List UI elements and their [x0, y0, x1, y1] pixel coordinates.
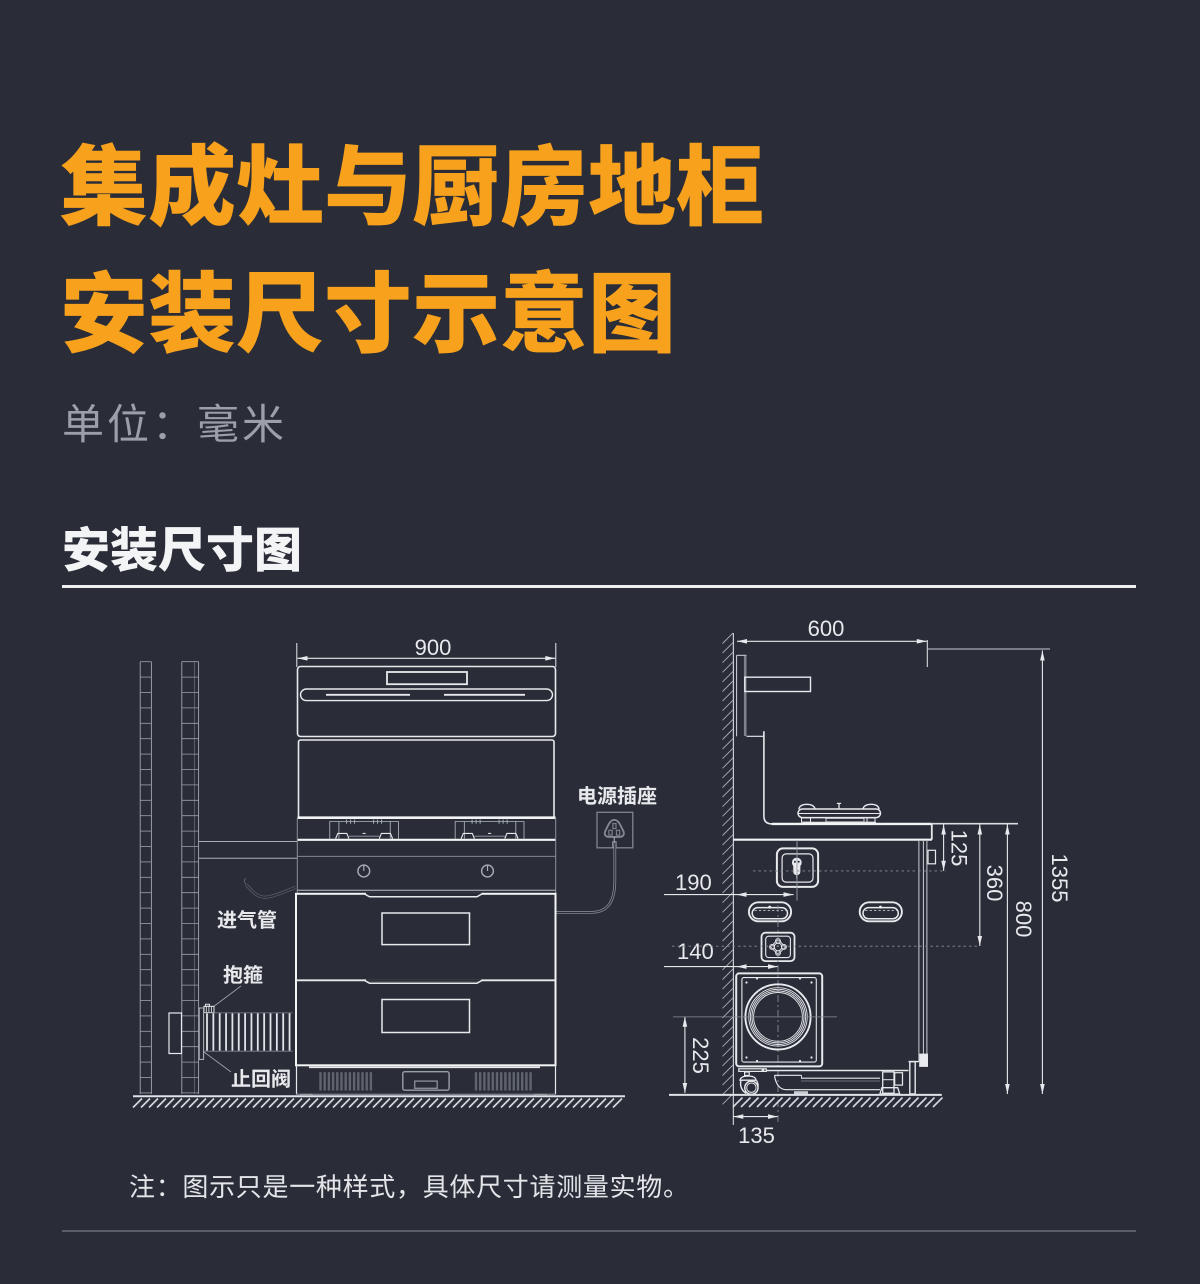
svg-text:600: 600 — [808, 616, 845, 641]
svg-text:225: 225 — [688, 1037, 713, 1074]
svg-text:止回阀: 止回阀 — [231, 1063, 291, 1092]
svg-text:进气管: 进气管 — [217, 904, 277, 933]
svg-text:360: 360 — [982, 865, 1007, 902]
svg-text:140: 140 — [677, 939, 714, 964]
svg-text:190: 190 — [675, 870, 712, 895]
svg-text:135: 135 — [738, 1123, 775, 1148]
svg-text:电源插座: 电源插座 — [577, 780, 657, 809]
svg-text:900: 900 — [415, 635, 452, 660]
svg-text:抱箍: 抱箍 — [223, 959, 263, 988]
svg-text:125: 125 — [947, 830, 972, 867]
svg-text:1355: 1355 — [1047, 854, 1072, 903]
svg-text:800: 800 — [1011, 901, 1036, 938]
